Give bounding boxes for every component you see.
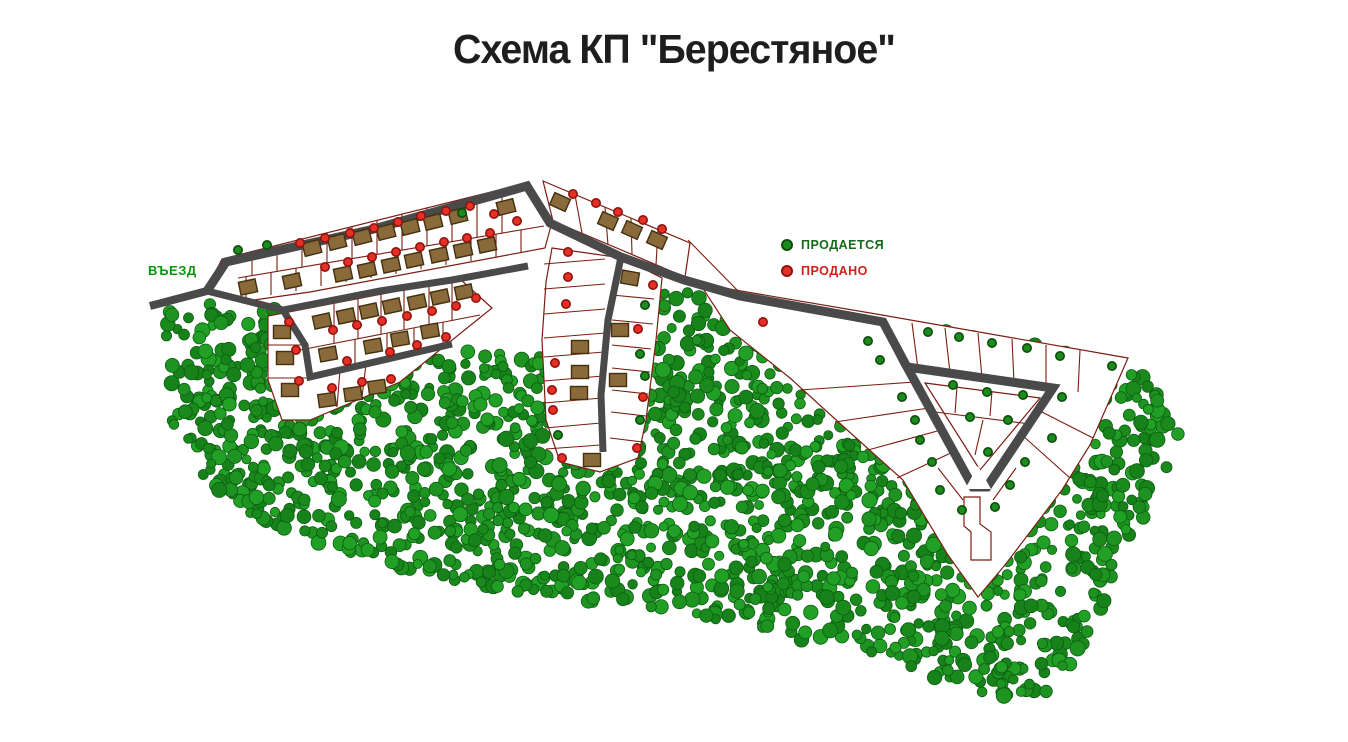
tree-icon (293, 422, 307, 436)
tree-icon (222, 342, 236, 356)
tree-icon (657, 459, 668, 470)
tree-icon (369, 406, 381, 418)
plot-marker-sold (353, 321, 361, 329)
tree-icon (301, 458, 315, 472)
tree-icon (733, 469, 744, 480)
tree-icon (1150, 432, 1165, 447)
tree-icon (906, 528, 921, 543)
tree-icon (1161, 417, 1175, 431)
tree-icon (715, 551, 724, 560)
tree-icon (419, 487, 430, 498)
plot-marker-for-sale (876, 356, 884, 364)
plot-marker-sold (562, 300, 570, 308)
house-icon (319, 346, 338, 362)
house-icon (381, 257, 400, 273)
tree-icon (242, 317, 255, 330)
tree-icon (161, 331, 171, 341)
tree-icon (457, 396, 468, 407)
tree-icon (1161, 462, 1172, 473)
tree-icon (778, 558, 792, 572)
plot-marker-for-sale (1006, 481, 1014, 489)
tree-icon (819, 590, 834, 605)
tree-icon (401, 389, 411, 399)
tree-icon (223, 397, 237, 411)
tree-icon (661, 558, 672, 569)
tree-icon (844, 440, 855, 451)
tree-icon (481, 413, 494, 426)
tree-icon (725, 379, 739, 393)
tree-icon (927, 670, 941, 684)
tree-icon (371, 479, 382, 490)
tree-icon (451, 542, 463, 554)
tree-icon (786, 616, 800, 630)
tree-icon (538, 529, 552, 543)
tree-icon (931, 562, 940, 571)
plot-marker-sold (649, 281, 657, 289)
tree-icon (714, 469, 726, 481)
tree-icon (541, 585, 553, 597)
tree-icon (178, 405, 192, 419)
tree-icon (385, 555, 399, 569)
tree-icon (992, 626, 1004, 638)
tree-icon (529, 492, 540, 503)
tree-icon (720, 480, 734, 494)
tree-icon (460, 572, 470, 582)
site-plan-map (0, 0, 1348, 742)
tree-icon (1024, 679, 1034, 689)
tree-icon (1001, 637, 1013, 649)
tree-icon (1013, 624, 1025, 636)
tree-icon (846, 567, 857, 578)
plot-marker-sold (592, 199, 600, 207)
plot-marker-for-sale (641, 301, 649, 309)
tree-icon (773, 398, 784, 409)
tree-icon (317, 527, 328, 538)
tree-icon (792, 590, 802, 600)
tree-icon (445, 526, 456, 537)
tree-icon (361, 543, 374, 556)
tree-icon (165, 308, 179, 322)
tree-icon (224, 429, 238, 443)
tree-icon (719, 345, 729, 355)
tree-icon (710, 482, 720, 492)
tree-icon (763, 582, 773, 592)
tree-icon (259, 397, 268, 406)
plot-marker-sold (413, 341, 421, 349)
plot-marker-sold (344, 258, 352, 266)
tree-icon (263, 479, 275, 491)
tree-icon (615, 545, 624, 554)
tree-icon (468, 534, 481, 547)
tree-icon (646, 602, 656, 612)
tree-icon (248, 462, 258, 472)
tree-icon (1016, 687, 1026, 697)
tree-icon (801, 550, 813, 562)
tree-icon (739, 346, 753, 360)
tree-icon (743, 485, 754, 496)
tree-icon (708, 443, 720, 455)
tree-icon (262, 413, 271, 422)
tree-icon (906, 661, 917, 672)
tree-icon (332, 427, 343, 438)
tree-icon (184, 434, 193, 443)
tree-icon (1134, 415, 1149, 430)
plot-marker-sold (394, 218, 402, 226)
tree-icon (908, 571, 918, 581)
tree-icon (871, 626, 885, 640)
plot-marker-sold (329, 326, 337, 334)
house-icon (621, 270, 640, 286)
tree-icon (424, 510, 436, 522)
tree-icon (923, 621, 935, 633)
tree-icon (759, 439, 769, 449)
tree-icon (508, 502, 519, 513)
plot-marker-sold (634, 325, 642, 333)
tree-icon (1065, 520, 1074, 529)
entrance-label: ВЪЕЗД (148, 263, 197, 278)
tree-icon (531, 383, 542, 394)
tree-icon (635, 458, 646, 469)
tree-icon (541, 497, 552, 508)
tree-icon (1054, 505, 1067, 518)
tree-icon (595, 553, 608, 566)
tree-icon (1132, 393, 1141, 402)
tree-icon (462, 493, 474, 505)
tree-icon (1078, 610, 1090, 622)
tree-icon (890, 612, 900, 622)
tree-icon (351, 517, 362, 528)
tree-icon (673, 595, 687, 609)
tree-icon (628, 580, 638, 590)
tree-icon (408, 528, 420, 540)
house-icon (357, 262, 376, 278)
tree-icon (442, 360, 456, 374)
plot-marker-for-sale (1004, 416, 1012, 424)
tree-icon (370, 510, 380, 520)
tree-icon (945, 656, 954, 665)
plot-marker-sold (442, 207, 450, 215)
tree-icon (648, 407, 662, 421)
tree-icon (532, 507, 545, 520)
tree-icon (602, 474, 615, 487)
tree-icon (203, 443, 213, 453)
tree-icon (562, 494, 575, 507)
tree-icon (420, 497, 430, 507)
house-icon (421, 323, 440, 339)
house-icon (572, 366, 589, 379)
tree-icon (164, 376, 179, 391)
tree-icon (242, 455, 251, 464)
plot-marker-for-sale (636, 416, 644, 424)
tree-icon (857, 451, 869, 463)
plot-marker-sold (386, 348, 394, 356)
tree-icon (763, 467, 772, 476)
plot-marker-sold (321, 263, 329, 271)
house-icon (282, 384, 299, 397)
tree-icon (1090, 568, 1102, 580)
tree-icon (685, 592, 700, 607)
tree-icon (791, 519, 804, 532)
tree-icon (705, 516, 715, 526)
tree-icon (442, 462, 457, 477)
tree-icon (668, 386, 680, 398)
tree-icon (889, 488, 902, 501)
tree-icon (627, 551, 636, 560)
tree-icon (280, 508, 294, 522)
tree-icon (628, 492, 640, 504)
tree-icon (426, 434, 437, 445)
tree-icon (864, 541, 878, 555)
tree-icon (503, 518, 513, 528)
tree-icon (750, 403, 765, 418)
tree-icon (405, 507, 415, 517)
tree-icon (444, 555, 456, 567)
tree-icon (1015, 551, 1027, 563)
tree-icon (704, 367, 714, 377)
tree-icon (941, 566, 954, 579)
tree-icon (207, 459, 216, 468)
plot-marker-for-sale (1056, 352, 1064, 360)
plot-marker-for-sale (983, 388, 991, 396)
tree-icon (655, 362, 670, 377)
tree-icon (417, 462, 431, 476)
plot-marker-for-sale (641, 372, 649, 380)
page-title: Схема КП "Берестяное" (27, 26, 1321, 73)
site-plan-page: Схема КП "Берестяное" ПРОДАЕТСЯ ПРОДАНО … (0, 0, 1348, 742)
tree-icon (503, 382, 514, 393)
tree-icon (629, 521, 641, 533)
tree-icon (756, 484, 770, 498)
tree-icon (752, 523, 761, 532)
plot-marker-sold (428, 307, 436, 315)
tree-icon (198, 421, 213, 436)
tree-icon (1097, 594, 1111, 608)
tree-icon (400, 445, 415, 460)
tree-icon (659, 300, 671, 312)
tree-icon (1123, 409, 1135, 421)
plot-marker-for-sale (263, 241, 271, 249)
tree-icon (1115, 392, 1127, 404)
tree-icon (943, 665, 954, 676)
tree-icon (812, 518, 824, 530)
tree-icon (421, 387, 434, 400)
tree-icon (492, 581, 504, 593)
tree-icon (1107, 531, 1122, 546)
tree-icon (709, 497, 720, 508)
tree-icon (795, 398, 806, 409)
tree-icon (1151, 394, 1164, 407)
tree-icon (438, 430, 448, 440)
plot-marker-sold (442, 333, 450, 341)
tree-icon (1058, 661, 1068, 671)
plot-marker-for-sale (554, 431, 562, 439)
plot-marker-for-sale (864, 337, 872, 345)
tree-icon (1040, 562, 1051, 573)
house-icon (336, 308, 355, 324)
tree-icon (700, 609, 713, 622)
tree-icon (828, 527, 842, 541)
tree-icon (742, 370, 752, 380)
tree-icon (297, 510, 311, 524)
tree-icon (328, 482, 338, 492)
tree-icon (590, 492, 600, 502)
tree-icon (598, 521, 611, 534)
tree-icon (693, 570, 706, 583)
plot-marker-sold (549, 406, 557, 414)
tree-icon (406, 471, 419, 484)
tree-icon (574, 561, 587, 574)
tree-icon (345, 467, 355, 477)
tree-icon (689, 521, 700, 532)
tree-icon (1110, 446, 1122, 458)
plot-marker-for-sale (966, 413, 974, 421)
tree-icon (645, 487, 657, 499)
tree-icon (667, 323, 676, 332)
plot-marker-sold (392, 248, 400, 256)
plot-marker-for-sale (958, 506, 966, 514)
tree-icon (420, 446, 433, 459)
tree-icon (771, 381, 783, 393)
tree-icon (244, 434, 259, 449)
house-icon (454, 284, 473, 300)
tree-icon (977, 687, 987, 697)
tree-icon (315, 472, 328, 485)
tree-icon (299, 494, 311, 506)
tree-icon (836, 551, 848, 563)
tree-icon (378, 518, 388, 528)
plot-marker-sold (486, 229, 494, 237)
tree-icon (892, 530, 905, 543)
tree-icon (767, 450, 776, 459)
plot-marker-sold (633, 444, 641, 452)
tree-icon (313, 509, 326, 522)
house-icon (282, 273, 301, 289)
tree-icon (885, 624, 896, 635)
tree-icon (730, 584, 744, 598)
tree-icon (821, 542, 830, 551)
house-icon (312, 313, 331, 329)
house-icon (238, 279, 257, 295)
tree-icon (683, 485, 698, 500)
tree-icon (708, 417, 718, 427)
plot-marker-sold (551, 359, 559, 367)
tree-icon (373, 530, 387, 544)
legend: ПРОДАЕТСЯ ПРОДАНО (781, 236, 884, 288)
plot-marker-sold (564, 248, 572, 256)
plot-marker-sold (639, 216, 647, 224)
tree-icon (343, 536, 357, 550)
tree-icon (198, 344, 212, 358)
plot-marker-sold (417, 212, 425, 220)
tree-icon (1089, 588, 1099, 598)
tree-icon (331, 492, 346, 507)
tree-icon (165, 358, 179, 372)
tree-icon (689, 370, 703, 384)
tree-icon (993, 586, 1002, 595)
tree-icon (369, 495, 381, 507)
tree-icon (1070, 641, 1085, 656)
tree-icon (527, 415, 538, 426)
tree-icon (646, 543, 655, 552)
tree-icon (505, 529, 515, 539)
tree-icon (252, 509, 262, 519)
plot-marker-for-sale (1021, 458, 1029, 466)
house-icon (610, 374, 627, 387)
tree-icon (1096, 490, 1108, 502)
tree-icon (901, 623, 915, 637)
tree-icon (474, 398, 487, 411)
tree-icon (935, 589, 947, 601)
tree-icon (907, 590, 920, 603)
tree-icon (202, 370, 211, 379)
tree-icon (214, 316, 228, 330)
tree-icon (439, 397, 451, 409)
tree-icon (981, 600, 992, 611)
tree-icon (1067, 621, 1079, 633)
tree-icon (836, 600, 851, 615)
tree-icon (491, 369, 501, 379)
plot-marker-sold (614, 208, 622, 216)
tree-icon (668, 525, 681, 538)
plot-marker-sold (296, 239, 304, 247)
plot-marker-for-sale (1019, 391, 1027, 399)
tree-icon (949, 627, 963, 641)
tree-icon (314, 427, 326, 439)
tree-icon (778, 603, 791, 616)
tree-icon (510, 423, 520, 433)
tree-icon (476, 577, 486, 587)
tree-icon (963, 601, 977, 615)
tree-icon (1116, 478, 1130, 492)
tree-icon (812, 461, 825, 474)
tree-icon (249, 490, 264, 505)
tree-icon (862, 493, 877, 508)
tree-icon (184, 365, 199, 380)
plot-marker-sold (328, 384, 336, 392)
tree-icon (338, 455, 351, 468)
tree-icon (229, 471, 243, 485)
tree-icon (792, 472, 802, 482)
plot-marker-for-sale (991, 503, 999, 511)
tree-icon (958, 658, 972, 672)
tree-icon (765, 369, 775, 379)
house-icon (391, 331, 410, 347)
tree-icon (1093, 532, 1107, 546)
tree-icon (423, 560, 436, 573)
tree-icon (736, 501, 748, 513)
tree-icon (1097, 547, 1112, 562)
tree-icon (824, 431, 833, 440)
tree-icon (669, 291, 684, 306)
tree-icon (865, 480, 877, 492)
tree-icon (588, 569, 603, 584)
plot-marker-sold (416, 243, 424, 251)
tree-icon (755, 501, 764, 510)
tree-icon (462, 371, 476, 385)
tree-icon (405, 401, 417, 413)
tree-icon (662, 541, 676, 555)
tree-icon (1014, 589, 1026, 601)
tree-icon (1073, 494, 1082, 503)
tree-icon (673, 457, 685, 469)
tree-icon (1121, 525, 1131, 535)
tree-icon (1035, 657, 1048, 670)
house-icon (382, 298, 401, 314)
tree-icon (443, 499, 453, 509)
tree-icon (813, 415, 823, 425)
house-icon (430, 289, 449, 305)
house-icon (344, 386, 363, 401)
